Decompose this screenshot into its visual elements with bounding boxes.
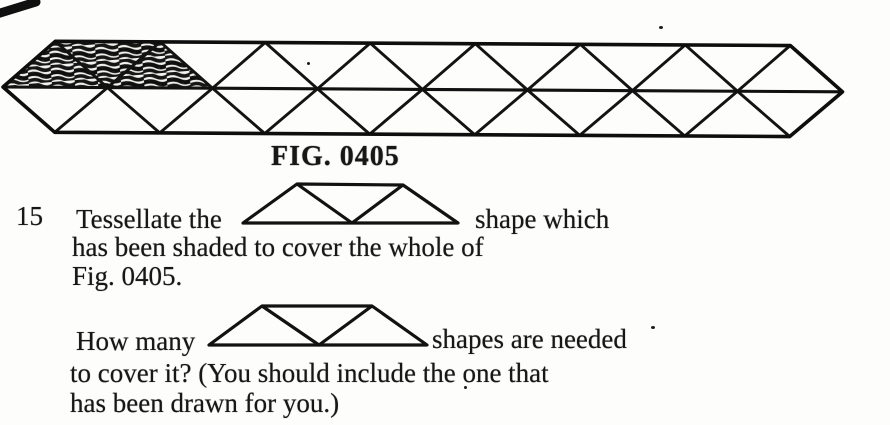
question-text-line2: has been shaded to cover the whole of — [72, 232, 484, 262]
question-text-line3: Fig. 0405. — [72, 261, 182, 291]
question-text-tessellate: Tessellate the — [76, 204, 222, 234]
scan-speck — [651, 326, 655, 329]
question-text-shape-which: shape which — [475, 204, 609, 234]
question-text-shapes-needed: shapes are needed — [432, 324, 627, 354]
trapezium-shape-inline-1 — [238, 179, 464, 229]
question-text-line6: has been drawn for you.) — [70, 388, 339, 418]
scanned-worksheet-page: FIG. 0405 15 Tessellate the shape which … — [0, 0, 890, 425]
fig-0405-diagram — [0, 18, 890, 148]
question-number: 15 — [16, 201, 43, 231]
trapezium-shape-inline-2 — [204, 301, 432, 351]
question-text-line5: to cover it? (You should include the one… — [70, 358, 549, 388]
triangle-grid-bottom-row — [3, 87, 843, 137]
shaded-trapezium-region — [3, 41, 213, 88]
question-text-how-many: How many — [76, 326, 195, 356]
figure-caption: FIG. 0405 — [271, 142, 400, 172]
